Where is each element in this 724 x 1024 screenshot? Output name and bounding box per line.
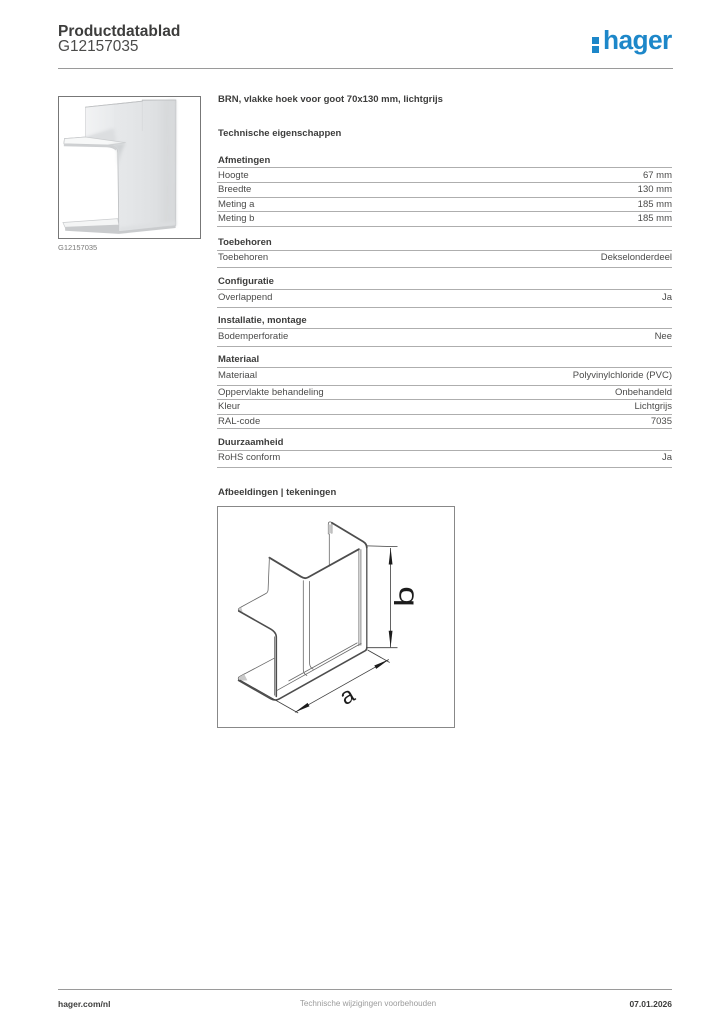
svg-text:a: a <box>335 681 359 710</box>
svg-text:b: b <box>389 586 419 607</box>
